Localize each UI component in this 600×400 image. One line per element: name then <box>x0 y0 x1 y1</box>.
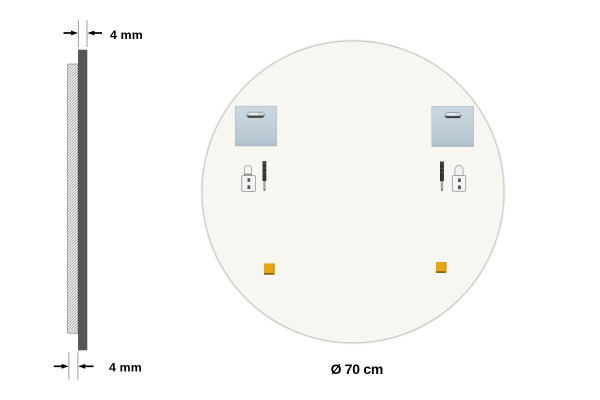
svg-text:Ø 70 cm: Ø 70 cm <box>331 361 383 377</box>
svg-text:4 mm: 4 mm <box>110 28 143 42</box>
svg-text:4 mm: 4 mm <box>109 360 142 374</box>
